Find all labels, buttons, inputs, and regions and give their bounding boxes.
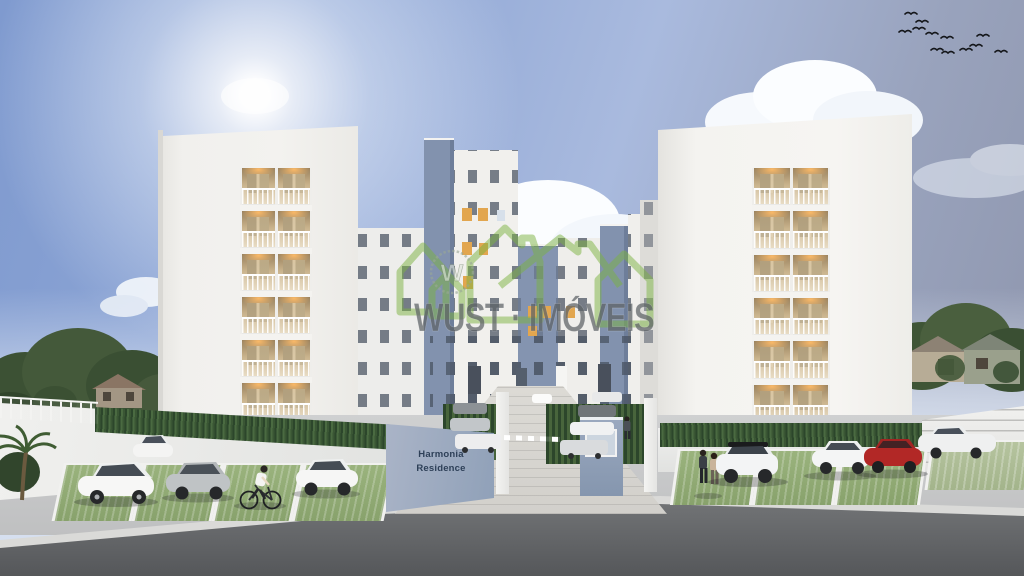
- watermark-emblem-letter: W: [441, 260, 464, 287]
- watermark-brand-text: WUST · IMÓVEIS: [414, 294, 654, 340]
- watermark-layer: W WUST · IMÓVEIS: [0, 0, 1024, 576]
- render-scene: Harmonia Residence: [0, 0, 1024, 576]
